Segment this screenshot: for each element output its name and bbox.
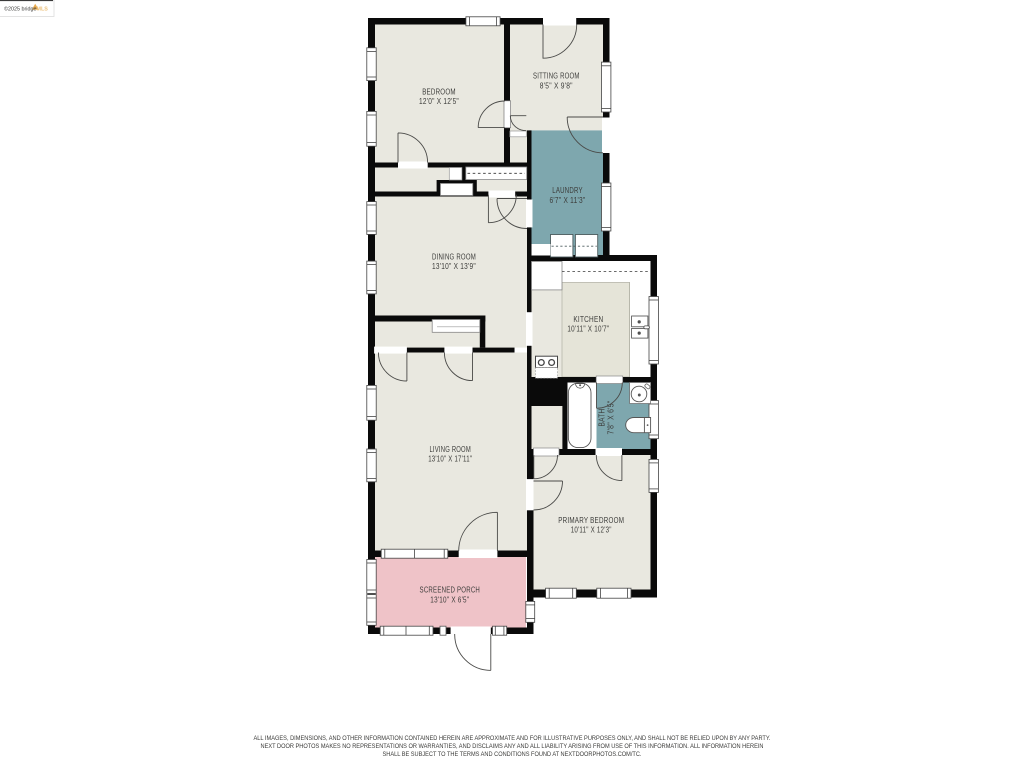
svg-text:BEDROOM: BEDROOM — [422, 86, 456, 96]
svg-text:SCREENED PORCH: SCREENED PORCH — [420, 585, 481, 595]
svg-text:SHALL BE SUBJECT TO THE TERMS: SHALL BE SUBJECT TO THE TERMS AND CONDIT… — [383, 751, 642, 758]
svg-text:BATH: BATH — [597, 409, 607, 427]
svg-text:13'10" X 13'9": 13'10" X 13'9" — [432, 262, 476, 271]
svg-text:10'11" X 10'7": 10'11" X 10'7" — [567, 325, 609, 334]
svg-text:DINING ROOM: DINING ROOM — [432, 251, 476, 261]
svg-text:6'7" X 11'3": 6'7" X 11'3" — [550, 196, 586, 205]
svg-text:LIVING ROOM: LIVING ROOM — [429, 444, 471, 454]
svg-text:8'5" X 9'8": 8'5" X 9'8" — [540, 81, 573, 90]
svg-text:PRIMARY BEDROOM: PRIMARY BEDROOM — [558, 515, 624, 525]
svg-text:12'0" X 12'5": 12'0" X 12'5" — [419, 97, 459, 106]
svg-text:13'10" X 6'5": 13'10" X 6'5" — [430, 596, 469, 605]
svg-text:SITTING ROOM: SITTING ROOM — [533, 70, 580, 80]
svg-text:ALL IMAGES, DIMENSIONS, AND OT: ALL IMAGES, DIMENSIONS, AND OTHER INFORM… — [254, 735, 771, 742]
svg-text:10'11" X 12'3": 10'11" X 12'3" — [571, 525, 612, 534]
svg-text:KITCHEN: KITCHEN — [573, 314, 603, 324]
svg-text:LAUNDRY: LAUNDRY — [552, 185, 583, 195]
svg-text:7'8" X 6'5": 7'8" X 6'5" — [607, 401, 616, 435]
svg-text:©2025 bridgeMLS: ©2025 bridgeMLS — [4, 6, 48, 13]
svg-text:NEXT DOOR PHOTOS MAKES NO REPR: NEXT DOOR PHOTOS MAKES NO REPRESENTATION… — [261, 743, 764, 750]
svg-text:13'10" X 17'11": 13'10" X 17'11" — [428, 455, 472, 464]
